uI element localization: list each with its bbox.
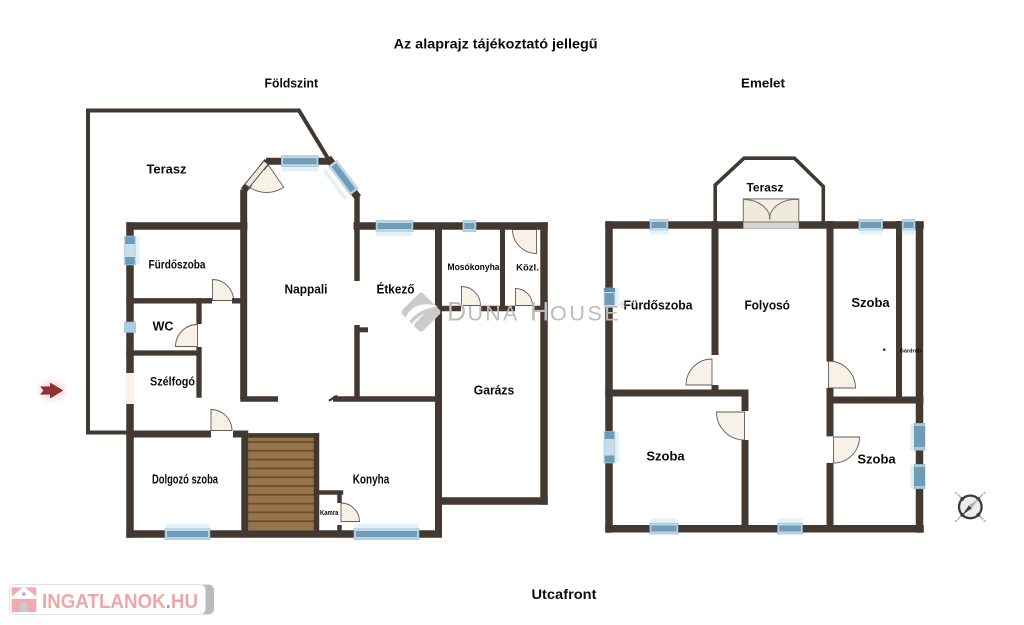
svg-text:Terasz: Terasz — [747, 181, 784, 195]
svg-text:Az alaprajz tájékoztató jelleg: Az alaprajz tájékoztató jellegű — [394, 35, 598, 51]
svg-text:Folyosó: Folyosó — [744, 298, 790, 313]
svg-text:Terasz: Terasz — [147, 161, 187, 176]
svg-text:D: D — [447, 297, 466, 327]
svg-text:Szélfogó: Szélfogó — [150, 375, 195, 389]
svg-text:UNA: UNA — [468, 302, 520, 326]
svg-text:WC: WC — [153, 320, 174, 334]
svg-text:Szoba: Szoba — [851, 295, 890, 310]
svg-text:Dolgozó szoba: Dolgozó szoba — [152, 472, 219, 486]
svg-text:Utcafront: Utcafront — [532, 586, 597, 602]
svg-text:Emelet: Emelet — [741, 75, 786, 90]
svg-text:Gardrób: Gardrób — [900, 349, 922, 355]
svg-text:Fürdőszoba: Fürdőszoba — [149, 258, 206, 272]
svg-text:Konyha: Konyha — [353, 472, 390, 486]
svg-text:®: ® — [620, 300, 627, 310]
svg-text:Földszint: Földszint — [265, 75, 319, 90]
svg-text:Étkező: Étkező — [377, 282, 415, 297]
svg-text:INGATLANOK.HU: INGATLANOK.HU — [42, 590, 198, 613]
svg-text:Kamra: Kamra — [320, 510, 339, 517]
svg-text:Mosókonyha: Mosókonyha — [448, 262, 501, 273]
svg-text:Garázs: Garázs — [474, 383, 515, 398]
svg-text:Nappali: Nappali — [285, 282, 328, 297]
svg-text:Közl.: Közl. — [516, 263, 539, 274]
svg-text:Szoba: Szoba — [646, 449, 685, 464]
svg-text:H: H — [530, 297, 549, 327]
svg-text:OUSE: OUSE — [550, 302, 621, 326]
svg-text:Fürdőszoba: Fürdőszoba — [624, 298, 694, 313]
svg-text:Szoba: Szoba — [857, 452, 896, 467]
